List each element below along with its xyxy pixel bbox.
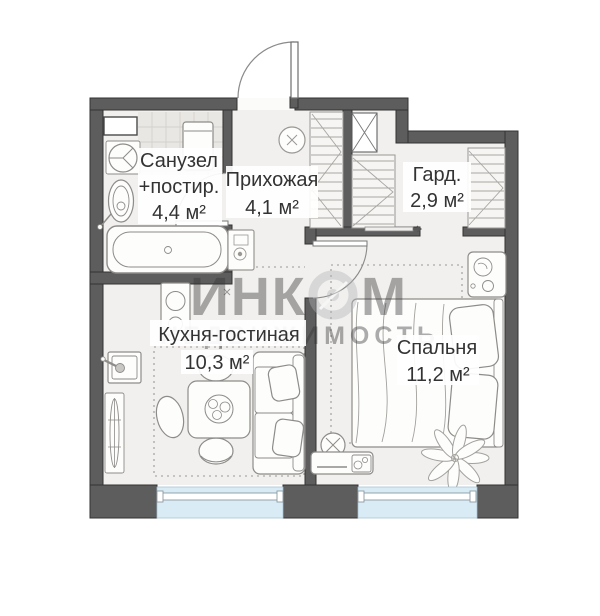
entrance-jamb xyxy=(290,97,298,108)
closet-wardrobe-left xyxy=(352,155,395,228)
wall-closet-divider xyxy=(343,110,352,228)
watermark-text-right: М xyxy=(361,267,408,327)
kitchen-area: 10,3 м² xyxy=(185,352,250,374)
wardrobe-area: 2,9 м² xyxy=(410,190,464,212)
wall-bottom-middle xyxy=(283,485,358,518)
wall-bottom-right xyxy=(477,485,518,518)
washbasin xyxy=(106,141,140,174)
sliding-door-panel xyxy=(365,227,413,231)
closet-wardrobe-right xyxy=(468,148,505,228)
wardrobe-sliding-door xyxy=(365,226,421,232)
wall-step xyxy=(396,110,408,143)
entrance-door-arc xyxy=(238,42,294,98)
sofa-pillow xyxy=(272,418,305,458)
sofa xyxy=(253,352,305,474)
bedroom-label: Спальня xyxy=(397,337,477,359)
kitchen-label: Кухня-гостиная xyxy=(158,324,300,346)
wall-wardrobe-top xyxy=(408,131,518,143)
window-kitchen xyxy=(157,487,283,518)
entrance-threshold xyxy=(237,98,295,110)
bathtub xyxy=(107,226,228,273)
bathroom-label: Санузел xyxy=(140,150,218,172)
nightstand xyxy=(468,252,506,297)
electrical-cabinet xyxy=(228,230,254,270)
entrance-door-leaf xyxy=(291,42,298,98)
bedroom-area: 11,2 м² xyxy=(406,364,470,386)
ceiling-light-icon xyxy=(279,127,305,153)
entrance-door xyxy=(238,42,298,98)
bathroom-label-2: +постир. xyxy=(139,176,220,198)
floor-plan: ИНК М НЕДВИЖИМОСТЬ Санузел +постир. 4,4 … xyxy=(0,0,600,616)
wall-bathroom-divider-top xyxy=(223,110,232,173)
wall-right xyxy=(505,131,518,518)
radiator xyxy=(105,393,124,473)
wardrobe-label: Гард. xyxy=(413,164,462,186)
floor-plan-canvas: ИНК М НЕДВИЖИМОСТЬ Санузел +постир. 4,4 … xyxy=(0,0,600,616)
hallway-area: 4,1 м² xyxy=(245,197,299,219)
watermark-text-left: ИНК xyxy=(190,267,307,327)
wall-left xyxy=(90,98,103,518)
wall-bottom-left xyxy=(90,485,157,518)
sofa-pillow xyxy=(267,364,300,402)
hallway-label: Прихожая xyxy=(226,169,319,191)
duct-niche xyxy=(104,117,137,135)
bathroom-area: 4,4 м² xyxy=(152,202,206,224)
window-bedroom xyxy=(358,487,477,518)
vanity-table xyxy=(311,452,373,474)
wall-top-left xyxy=(90,98,237,110)
chair xyxy=(199,438,233,464)
bedroom-door-leaf xyxy=(313,241,367,246)
wall-top-right xyxy=(295,98,408,110)
